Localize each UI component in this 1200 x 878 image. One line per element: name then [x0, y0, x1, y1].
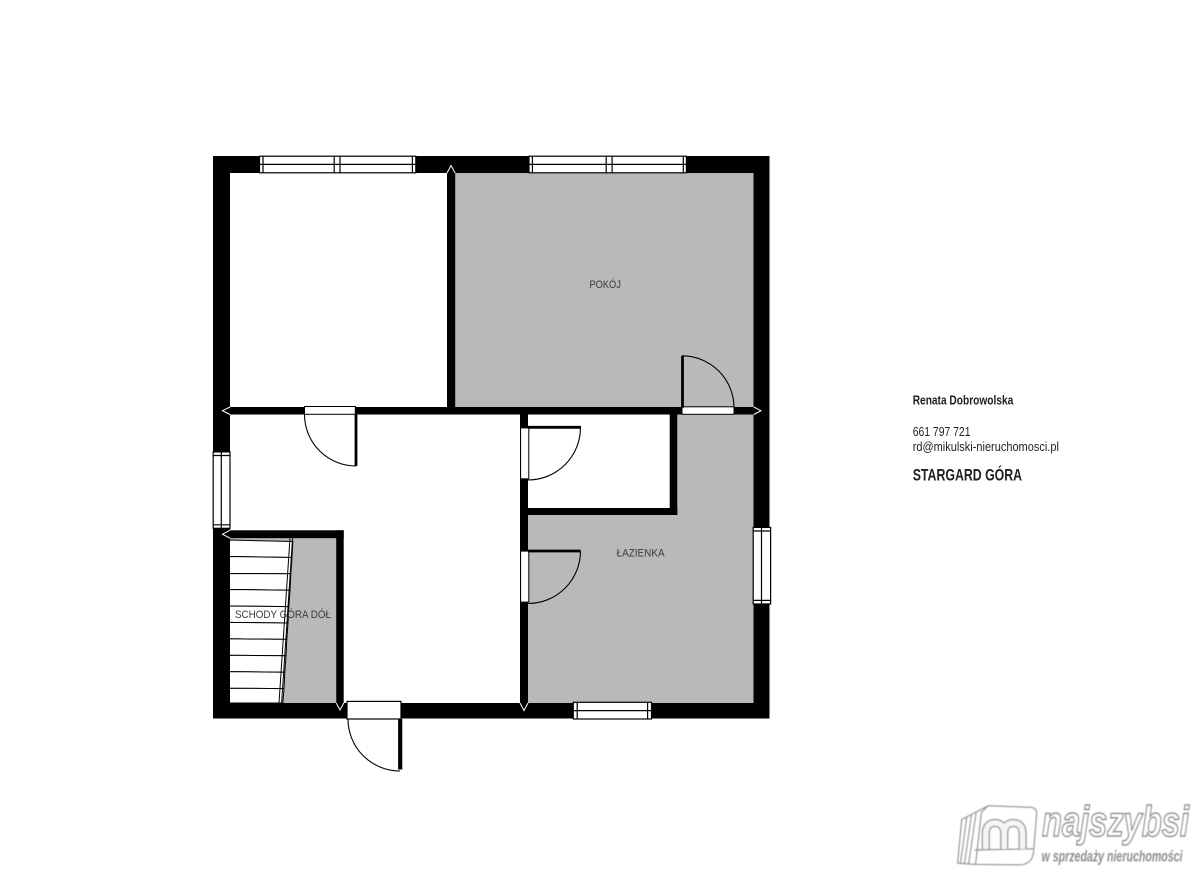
svg-text:POKÓJ: POKÓJ — [589, 278, 621, 291]
svg-text:ŁAZIENKA: ŁAZIENKA — [617, 548, 666, 560]
svg-text:SCHODY GÓRA DÓŁ: SCHODY GÓRA DÓŁ — [235, 608, 331, 621]
svg-text:Renata Dobrowolska: Renata Dobrowolska — [913, 393, 1014, 408]
svg-text:STARGARD GÓRA: STARGARD GÓRA — [913, 466, 1022, 485]
svg-text:661 797 721: 661 797 721 — [913, 424, 971, 439]
svg-text:rd@mikulski-nieruchomosci.pl: rd@mikulski-nieruchomosci.pl — [913, 439, 1059, 454]
svg-text:najszybsi: najszybsi — [1042, 798, 1190, 846]
svg-text:w sprzedaży nieruchomości: w sprzedaży nieruchomości — [1042, 849, 1183, 866]
